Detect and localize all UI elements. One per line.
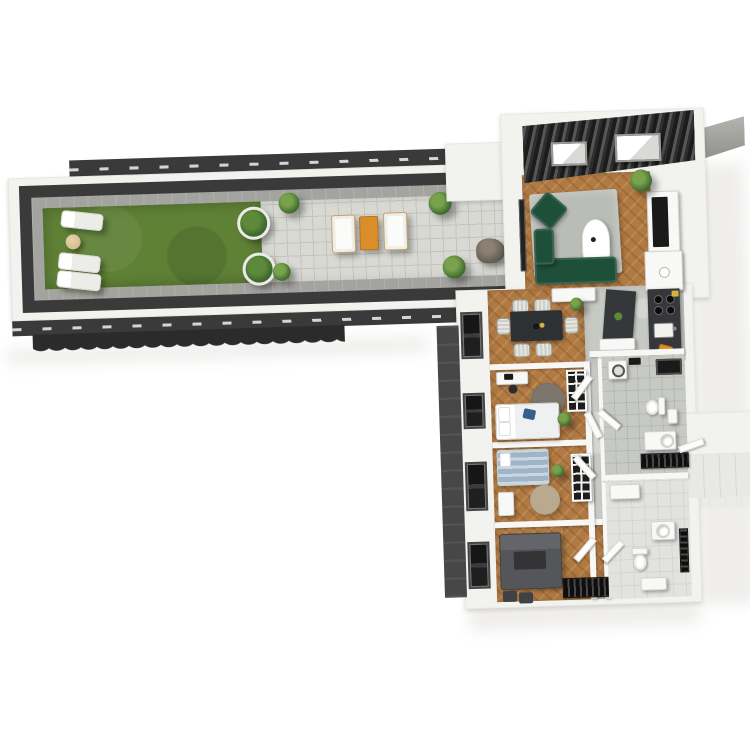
shower-glass [656, 358, 682, 375]
kitchen-accent-items [671, 290, 678, 296]
facade-window-3 [465, 462, 489, 512]
terrace-parapet [8, 163, 512, 322]
dining-chair-4 [535, 342, 552, 357]
bedroom1-pillow-1 [498, 407, 510, 422]
bath2-step [640, 577, 666, 591]
bedroom1-laptop [504, 374, 513, 380]
facade-window-1 [460, 312, 483, 360]
bath2-radiator [679, 528, 689, 572]
bedroom2-pillow [500, 453, 511, 467]
kitchen-faucet [673, 327, 677, 331]
entrance-walkway [688, 453, 750, 498]
dining-chair-6 [564, 317, 579, 334]
roof-top-left-piece [445, 142, 505, 202]
outdoor-sofa-right [383, 212, 408, 251]
bath1-wall-cabinet [667, 409, 677, 424]
terrace-interior [43, 194, 511, 290]
outdoor-coffee-table [359, 216, 379, 251]
scene-rotated [0, 0, 750, 750]
bath2-shelf [610, 484, 640, 500]
apartment [442, 106, 750, 625]
floorplan-canvas [0, 0, 750, 750]
dining-chair-5 [496, 318, 511, 335]
bedroom1-pillow-2 [499, 422, 511, 436]
bedroom3-bed-panel [514, 551, 547, 570]
bedroom2-desk [498, 492, 515, 516]
bedroom3-seat-2 [519, 592, 533, 603]
bedroom3-seat-1 [503, 591, 517, 602]
green-sofa-chaise [533, 228, 554, 265]
facade-window-2 [463, 393, 486, 430]
outdoor-sofa-left [331, 215, 356, 254]
dining-chair-3 [513, 343, 530, 358]
bath-shelf-items [629, 358, 641, 365]
bath1-radiator [641, 452, 689, 469]
kitchen-sink [654, 323, 674, 339]
toilet1-tank [658, 397, 666, 415]
facade-window-4 [467, 541, 490, 589]
skylight-2 [615, 133, 662, 162]
tv-screen [652, 197, 670, 247]
skylight-1 [551, 141, 588, 166]
